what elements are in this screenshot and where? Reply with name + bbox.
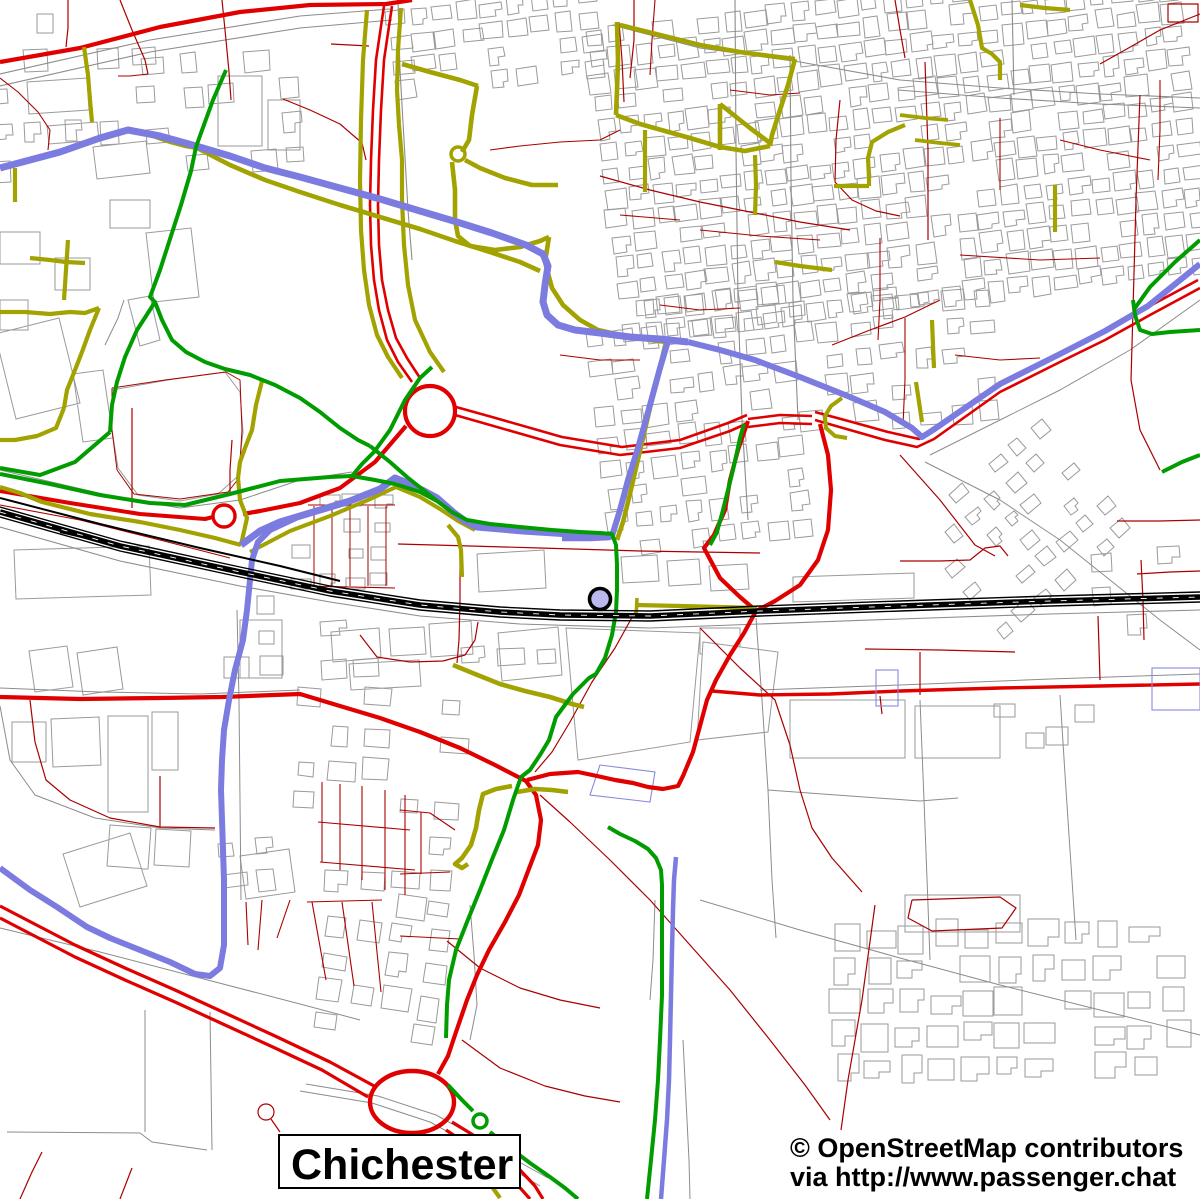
svg-text:Chichester: Chichester	[291, 1141, 514, 1189]
svg-text:via http://www.passenger.chat: via http://www.passenger.chat	[790, 1162, 1176, 1192]
svg-text:© OpenStreetMap contributors: © OpenStreetMap contributors	[790, 1133, 1183, 1163]
